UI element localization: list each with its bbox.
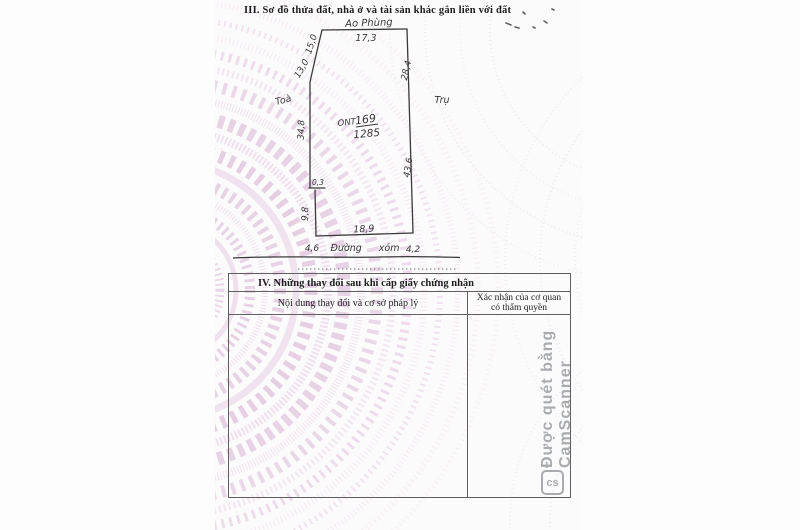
adjacent-right-label: Trụ (435, 95, 450, 106)
section4-table: IV. Những thay đổi sau khi cấp giấy chứn… (228, 273, 571, 498)
dim-bottom-right: 4,2 (406, 245, 421, 255)
road-label: Đường xóm (331, 243, 400, 254)
section4-title: IV. Những thay đổi sau khi cấp giấy chứn… (229, 277, 503, 289)
section4-header-row: Nội dung thay đổi và cơ sở pháp lý Xác n… (229, 292, 570, 315)
camscanner-watermark-text: Được quét bằng CamScanner (539, 222, 566, 468)
camscanner-logo-icon: cs (541, 470, 564, 495)
adjacent-top-label: Ao Phùng (344, 16, 393, 30)
dim-left-main: 34,8 (297, 119, 308, 140)
dim-bottom: 18,9 (353, 223, 375, 235)
section4-body-col1-cell (229, 315, 468, 498)
section4-col1-header: Nội dung thay đổi và cơ sở pháp lý (229, 292, 468, 314)
section4-title-row: IV. Những thay đổi sau khi cấp giấy chứn… (229, 274, 570, 292)
section3-title: III. Sơ đồ thửa đất, nhà ở và tài sản kh… (244, 5, 544, 16)
dim-top: 17,3 (355, 33, 376, 44)
section4-body-row (229, 315, 570, 498)
dim-bottom-left: 4,6 (305, 244, 320, 254)
parcel-area-label: 1285 (353, 127, 381, 141)
dim-left-lower: 9,8 (301, 206, 312, 221)
dim-left-jog: 0,3 (312, 178, 324, 187)
camscanner-logo-label: cs (546, 477, 558, 489)
